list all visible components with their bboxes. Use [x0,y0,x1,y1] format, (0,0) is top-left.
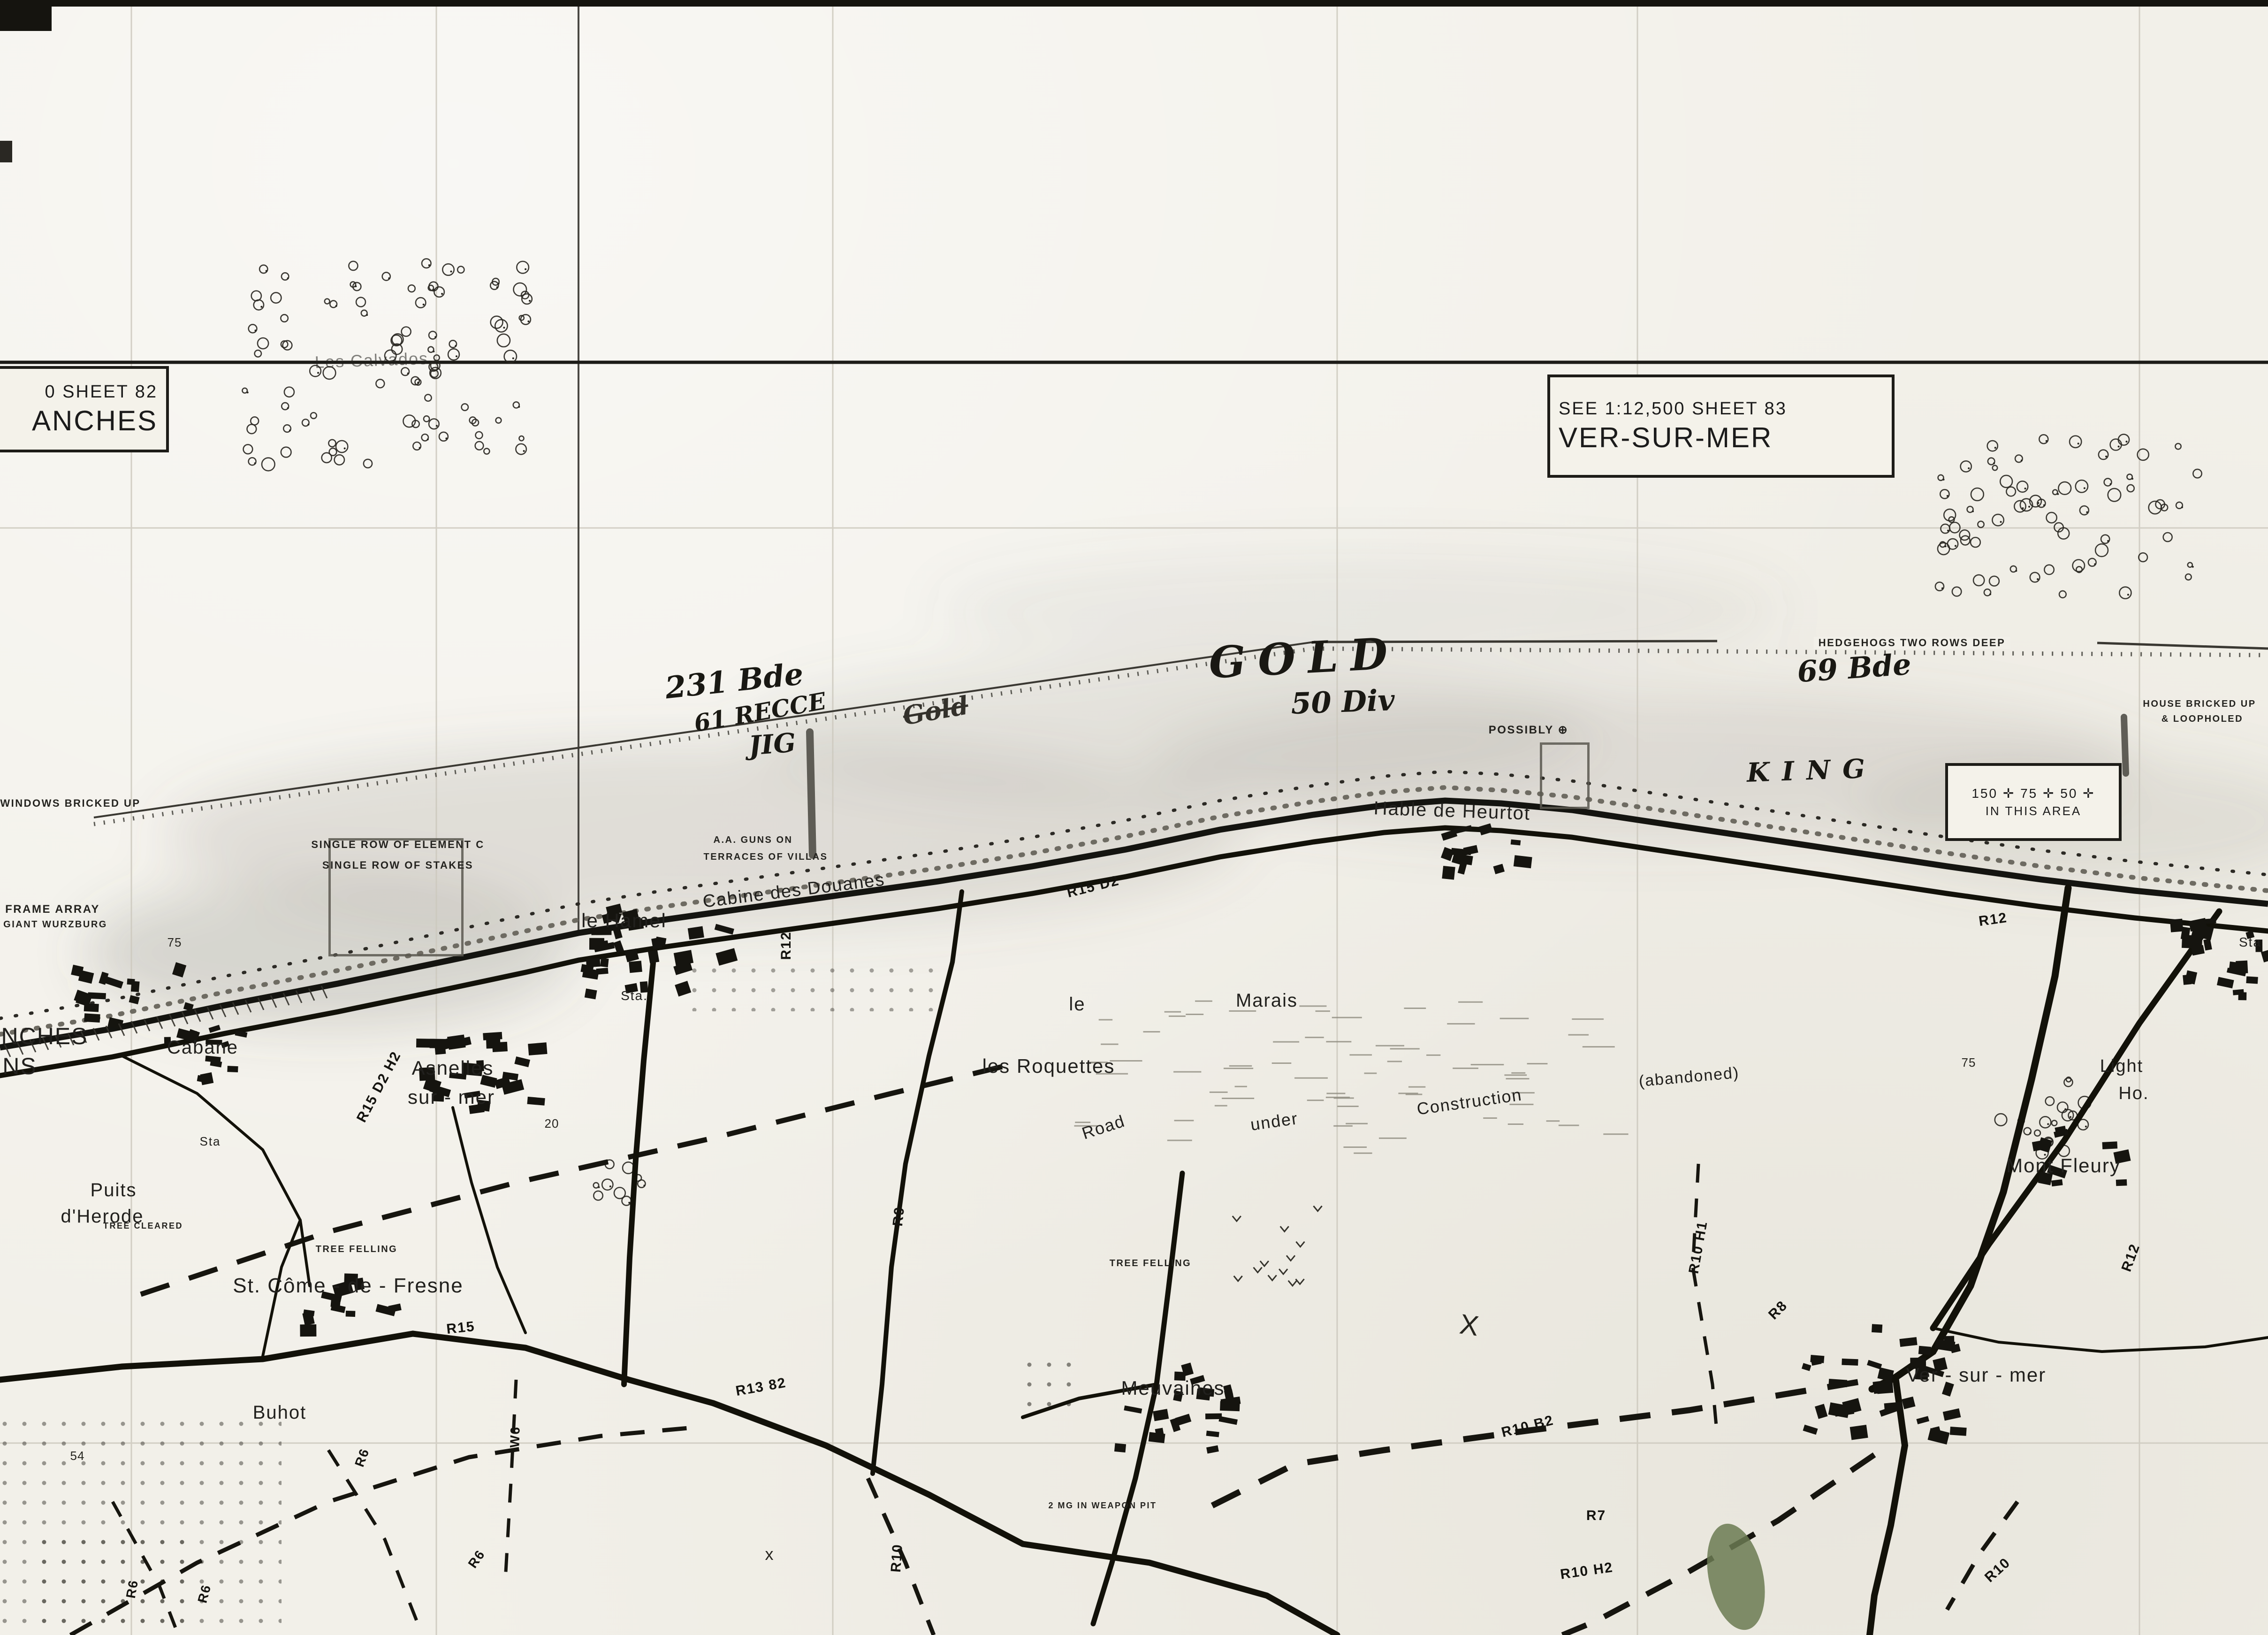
label-le-hamel: le Hamel [581,911,667,931]
label-hw-jig: JIG [748,730,797,759]
label-cabane: Cabane [167,1038,238,1057]
label-meuvaines: Meuvaines [1121,1378,1225,1398]
label-terraces-of-villas: TERRACES OF VILLAS [703,852,828,862]
label-single-row-stakes: SINGLE ROW OF STAKES [322,860,473,871]
label-spot-75-right: 75 [1962,1056,1976,1069]
label-tree-felling-2: TREE FELLING [1110,1259,1191,1268]
label-r15-d2-h2: R15 D2 H2 [355,1049,404,1124]
scanned-battle-map: 0 SHEET 82ANCHESSEE 1:12,500 SHEET 83VER… [0,0,2268,1635]
label-r8: R8 [1766,1298,1790,1322]
label-r10-h1: R10 H1 [1687,1220,1710,1275]
label-anches: NCHES [1,1024,88,1048]
label-construction: Construction [1416,1086,1523,1117]
label-r10-vert: R10 [889,1543,905,1573]
label-hw-king: KING [1746,755,1878,786]
label-hw-gold: GOLD [1208,631,1400,684]
label-r6-c: R6 [196,1583,213,1604]
label-w6: W6 [508,1426,522,1448]
label-tree-cleared: TREE CLEARED [103,1222,183,1230]
label-hw-gold-pencil: Gold [901,692,970,729]
label-hedgehogs: HEDGEHOGS TWO ROWS DEEP [1814,637,2010,649]
label-x-big: X [1458,1310,1481,1340]
label-r13-82: R13 82 [735,1376,787,1398]
label-cabine-des-douanes: Cabine des Douanes [702,871,886,910]
label-spot-20: 20 [545,1117,559,1130]
label-windows-bricked-up: WINDOWS BRICKED UP [0,798,140,809]
label-sta-right: Sta [2239,936,2261,949]
label-r6-b: R6 [124,1579,140,1599]
label-house-bricked-up: HOUSE BRICKED UP [2143,699,2256,709]
label-asnelles: Asnelles [412,1058,494,1078]
label-abandoned: (abandoned) [1638,1065,1740,1090]
label-r10-b2: R10 B2 [1500,1413,1555,1440]
label-r12-le-hamel: R12 [779,931,793,960]
label-road: Road [1080,1112,1127,1142]
label-giant-wurzburg: GIANT WURZBURG [3,920,107,929]
label-weapon-pit: 2 MG IN WEAPON PIT [1048,1501,1157,1510]
label-r15-d2-coast: R15 D2 [1066,874,1121,901]
label-light-ho: Ho. [2118,1085,2149,1102]
label-under: under [1249,1110,1299,1133]
label-hw-50-div: 50 Div [1290,686,1395,718]
label-r10-bottom-right: R10 [1982,1555,2013,1585]
label-spot-75-left: 75 [167,936,182,948]
label-light: Light [2100,1057,2143,1075]
label-frame-array: FRAME ARRAY [5,904,100,915]
label-aa-guns-on: A.A. GUNS ON [714,835,793,845]
label-ver-sur-mer: Ver - sur - mer [1906,1365,2046,1385]
label-r7: R7 [1586,1509,1606,1523]
label-r12-coast: R12 [1978,911,2009,929]
label-loopholed: & LOOPHOLED [2161,714,2243,724]
label-sta-left: Sta [199,1135,221,1147]
label-puits: Puits [91,1181,137,1200]
label-ns: NS [2,1054,37,1078]
label-hw-69-bde: 69 Bde [1796,650,1912,687]
label-les-calvados: Les Calvados [314,350,428,371]
label-possibly: POSSIBLY ⊕ [1489,725,1569,736]
label-hable-de-heurtot: Hable de Heurtot [1373,799,1531,823]
label-asnelles-sur-mer: sur - mer [408,1087,495,1107]
label-x-small: x [765,1546,774,1563]
label-buhot: Buhot [253,1403,307,1422]
label-le: le [1069,995,1085,1014]
label-les-roquettes: les Roquettes [982,1056,1115,1076]
label-r12-right: R12 [2119,1242,2142,1274]
label-spot-54: 54 [70,1450,85,1462]
label-r10-h2: R10 H2 [1560,1560,1614,1582]
label-r15: R15 [446,1320,476,1337]
label-mont-fleury: Mont Fleury [2006,1156,2121,1176]
label-tree-felling-1: TREE FELLING [316,1245,397,1254]
label-single-row-element-c: SINGLE ROW OF ELEMENT C [311,840,484,850]
label-st-come-de-fresne: St. Côme - de - Fresne [233,1276,463,1296]
label-r6-a: R6 [353,1447,372,1469]
label-r6-d: R6 [466,1548,487,1571]
map-labels: 231 Bde61 RECCEJIGGoldGOLD50 Div69 BdeKI… [0,0,2268,1635]
label-sta-le-hamel: Sta. [621,989,648,1002]
label-marais: Marais [1236,991,1298,1010]
label-r9: R9 [891,1206,907,1227]
